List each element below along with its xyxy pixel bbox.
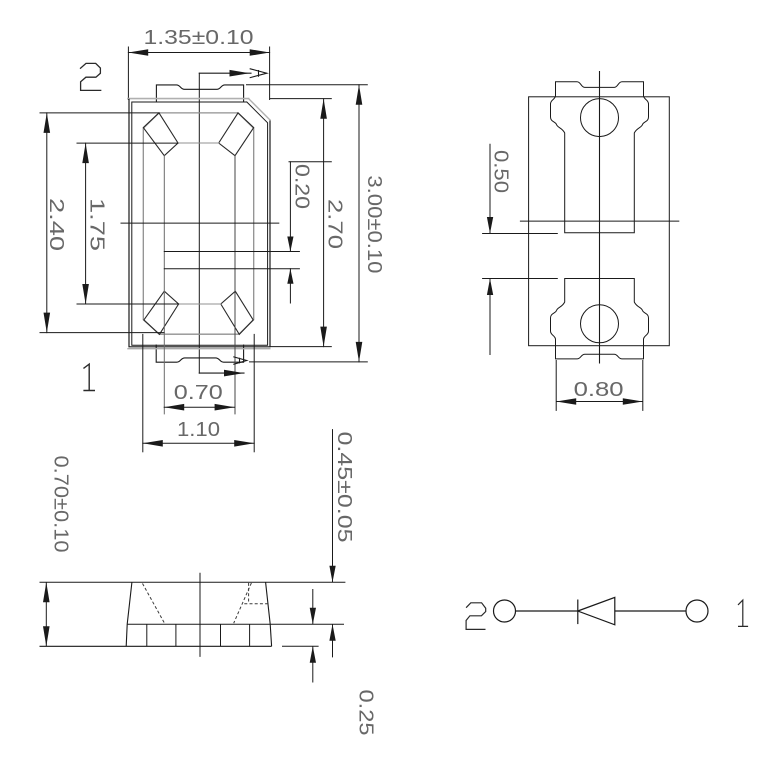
svg-text:0.20: 0.20: [291, 164, 313, 209]
svg-text:3.00±0.10: 3.00±0.10: [363, 175, 385, 273]
svg-text:0.70: 0.70: [174, 382, 223, 404]
svg-text:1.10: 1.10: [177, 419, 220, 441]
svg-text:0.70±0.10: 0.70±0.10: [50, 456, 72, 553]
svg-text:0.50: 0.50: [490, 150, 512, 193]
svg-text:0.25: 0.25: [355, 690, 377, 736]
svg-text:0.45±0.05: 0.45±0.05: [333, 432, 355, 543]
svg-text:1.75: 1.75: [86, 198, 108, 251]
svg-text:0.80: 0.80: [574, 379, 624, 401]
svg-text:2.40: 2.40: [45, 198, 67, 251]
svg-text:2.70: 2.70: [324, 199, 346, 249]
svg-text:1.35±0.10: 1.35±0.10: [144, 27, 254, 49]
